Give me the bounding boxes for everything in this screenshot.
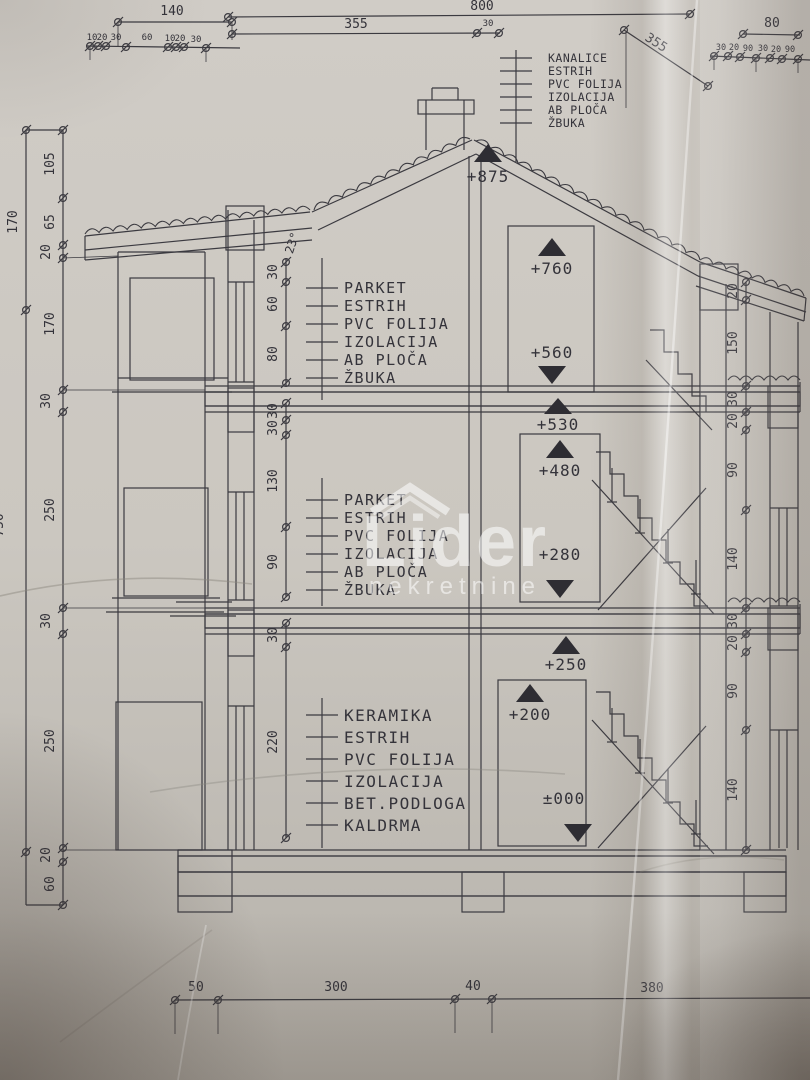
dim-label: 30 [266, 403, 281, 419]
dim-label: 60 [43, 876, 58, 892]
elevation-markers: +875 +760 +560 +530 +480 +280 +250 +200 … [467, 144, 600, 846]
roof-layers-legend: KANALICE ESTRIH PVC FOLIJA IZOLACIJA AB … [500, 50, 622, 162]
staircase [592, 330, 714, 854]
chimney [418, 88, 474, 150]
elevation-label: +480 [539, 461, 582, 480]
watermark-subtitle: nekretnine [369, 573, 541, 600]
section-drawing: +875 +760 +560 +530 +480 +280 +250 +200 … [0, 0, 810, 1080]
photo-of-section-drawing: +875 +760 +560 +530 +480 +280 +250 +200 … [0, 0, 810, 1080]
dim-label: 750 [0, 513, 7, 536]
facade-windows [106, 278, 232, 850]
dim-label: 20 [726, 413, 741, 429]
gravel-layer [178, 872, 786, 896]
dim-label: 30 [111, 33, 122, 43]
roof-angle-label: 23° [282, 230, 302, 255]
right-facade-window [770, 508, 798, 848]
dim-label: 140 [726, 778, 741, 801]
layer-label: ESTRIH [548, 64, 593, 78]
foundation-center [462, 872, 504, 912]
layer-label: KANALICE [548, 51, 607, 65]
layer-label: ŽBUKA [344, 368, 397, 387]
dim-label: 80 [266, 346, 281, 362]
dim-bottom: 50 300 40 380 [170, 979, 810, 1034]
elevation-label: ±000 [543, 789, 586, 808]
dim-label: 800 [470, 0, 493, 14]
dim-label: 90 [726, 683, 741, 699]
dim-label: 30 [266, 627, 281, 643]
dim-label: 50 [188, 980, 204, 995]
layer-label: PVC FOLIJA [344, 315, 449, 333]
dim-chain-right: 20 150 30 20 90 140 30 20 90 140 [726, 277, 751, 855]
dim-label: 130 [266, 469, 281, 492]
dim-label: 60 [142, 33, 153, 43]
elevation-label: +760 [531, 259, 574, 278]
watermark: Lider nekretnine [362, 487, 548, 600]
foundation-right [744, 872, 786, 912]
layer-label: IZOLACIJA [344, 772, 444, 791]
wall-slab-hatch [228, 388, 254, 432]
dim-label: 355 [344, 17, 367, 32]
dim-label: 30 [758, 44, 768, 54]
dim-label: 20 [97, 33, 108, 43]
wall-slab-hatch [228, 610, 254, 656]
dim-label: 140 [726, 547, 741, 570]
dim-top: 140 10 20 30 60 10 20 30 800 355 30 355 [85, 0, 810, 108]
layer-label: IZOLACIJA [548, 90, 615, 104]
layer-label: IZOLACIJA [344, 333, 439, 351]
foundation-left [178, 850, 232, 912]
watermark-title: Lider [362, 502, 548, 582]
dim-label: 250 [43, 498, 58, 521]
dim-label: 30 [483, 19, 494, 29]
dim-label: 30 [726, 613, 741, 629]
dim-label: 80 [764, 16, 780, 31]
dim-label: 20 [39, 244, 54, 260]
upper-slab [205, 382, 800, 412]
dim-label: 60 [266, 296, 281, 312]
dim-label: 30 [726, 391, 741, 407]
layer-label: PARKET [344, 279, 407, 297]
dim-label: 20 [726, 635, 741, 651]
dim-label: 20 [39, 847, 54, 863]
layer-label: KALDRMA [344, 816, 422, 835]
dim-label: 90 [785, 45, 795, 55]
layer-label: PVC FOLIJA [548, 77, 622, 91]
top-floor-layers-legend: PARKET ESTRIH PVC FOLIJA IZOLACIJA AB PL… [306, 258, 449, 400]
layer-label: AB PLOČA [548, 102, 607, 117]
dim-label: 20 [175, 34, 186, 44]
dim-label: 40 [465, 979, 481, 994]
ground-floor-layers-legend: KERAMIKA ESTRIH PVC FOLIJA IZOLACIJA BET… [306, 698, 466, 848]
dim-label: 30 [191, 35, 202, 45]
dim-label: 30 [39, 613, 54, 629]
elevation-label: +200 [509, 705, 552, 724]
section-window [228, 282, 254, 382]
elevation-label: +875 [467, 167, 510, 186]
dim-label: 105 [43, 152, 58, 175]
dim-label: 65 [43, 214, 58, 230]
dim-label: 30 [716, 43, 726, 53]
elevation-label: +530 [537, 415, 580, 434]
dim-label: 30 [39, 393, 54, 409]
dim-label: 30 [266, 420, 281, 436]
layer-label: BET.PODLOGA [344, 794, 466, 813]
dim-label: 90 [743, 44, 753, 54]
dim-label: 20 [729, 43, 739, 53]
layer-label: KERAMIKA [344, 706, 433, 725]
layer-label: ESTRIH [344, 297, 407, 315]
layer-label: ESTRIH [344, 728, 411, 747]
dim-label: 90 [726, 462, 741, 478]
middle-slab [170, 602, 800, 634]
layer-label: PVC FOLIJA [344, 750, 455, 769]
dim-label: 170 [43, 312, 58, 335]
dim-label: 300 [324, 980, 347, 995]
dim-label: 140 [160, 4, 183, 19]
elevation-label: +560 [531, 343, 574, 362]
dim-label: 30 [266, 264, 281, 280]
layer-label: ŽBUKA [548, 115, 585, 130]
dim-label: 355 [642, 30, 670, 55]
elevation-label: +250 [545, 655, 588, 674]
layer-label: AB PLOČA [344, 350, 428, 369]
dim-label: 20 [726, 283, 741, 299]
dim-label: 250 [43, 729, 58, 752]
dim-label: 20 [771, 45, 781, 55]
dim-label: 90 [266, 554, 281, 570]
dim-label: 150 [726, 331, 741, 354]
dim-label: 220 [266, 730, 281, 753]
dim-chain-left-inner: 105 65 20 170 30 250 30 250 20 60 [39, 125, 205, 910]
dim-chain-interior: 23° 30 60 80 30 30 130 90 30 220 [266, 230, 302, 843]
dim-label: 380 [640, 981, 663, 996]
dim-label: 170 [6, 210, 21, 233]
